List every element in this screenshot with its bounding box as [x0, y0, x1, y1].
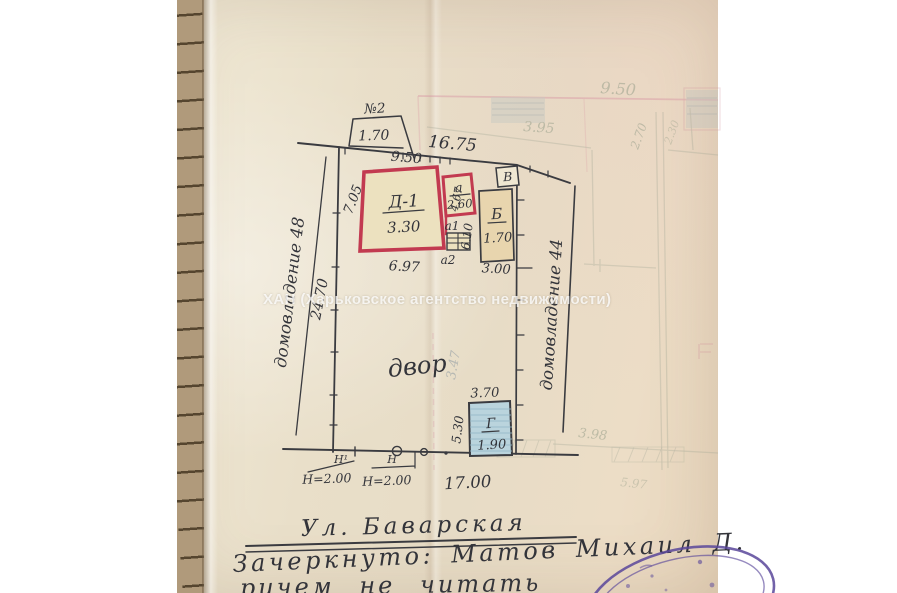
- dim-d1-bottom: 6.97: [388, 258, 420, 276]
- ghost-red-mark: [699, 344, 713, 359]
- note-line-2: ричем не читать: [240, 569, 542, 593]
- ghost-dim-230: 2.30: [661, 119, 682, 147]
- ghost-pink-line-left: [418, 96, 420, 150]
- ghost-bottom-hatch: [497, 440, 684, 462]
- ghost-dim-950: 9.50: [600, 78, 637, 99]
- street-label: Ул. Баварская: [301, 510, 527, 542]
- dim-top-total: 16.75: [427, 132, 477, 156]
- dim-b-bottom: 3.00: [481, 261, 511, 277]
- gate-mark-2-height: Н=2.00: [361, 472, 412, 489]
- tick-marks-right: [516, 200, 532, 440]
- gate-mark-1-label: Н¹: [333, 453, 348, 466]
- building-b: Б 1.70: [479, 189, 514, 262]
- ghost-dim-395: 3.95: [523, 119, 555, 137]
- building-g-label: Г: [485, 416, 497, 433]
- ghost-dim-270: 2.70: [627, 121, 650, 152]
- building-d1: Д-1 3.30: [360, 167, 444, 251]
- gate-mark-2: Н Н=2.00: [361, 452, 415, 489]
- ghost-pink-line-right: [584, 99, 587, 172]
- structure-v: В: [496, 166, 519, 187]
- gate-mark-1-height: Н=2.00: [301, 470, 352, 487]
- flag-number: №2: [363, 100, 386, 117]
- building-g: Г 1.90: [469, 401, 512, 456]
- yard-label: двор: [386, 349, 448, 383]
- building-d1-label: Д-1: [387, 191, 419, 213]
- building-d1-value: 3.30: [387, 217, 422, 237]
- gate-mark-2-label: Н: [386, 453, 397, 466]
- estate-right-group: домовладение 44: [537, 238, 567, 391]
- gate-mark-1: Н¹ Н=2.00: [301, 453, 354, 487]
- dim-top-segment: 9.50: [390, 149, 423, 168]
- agency-watermark: ХАН (Харьковское агентство недвижимости): [263, 291, 643, 308]
- dim-g-side: 5.30: [448, 415, 466, 444]
- building-b-label: Б: [490, 205, 503, 224]
- ghost-pink-line: [418, 96, 718, 100]
- neighbour-line: [563, 186, 575, 432]
- flag-height: 1.70: [358, 127, 390, 144]
- ghost-dim-398: 3.98: [578, 426, 608, 444]
- stamp-speckles: [626, 560, 714, 592]
- estate-right-label: домовладение 44: [537, 238, 567, 391]
- shed-a1-label: а1: [445, 219, 460, 233]
- building-g-value: 1.90: [477, 437, 507, 453]
- photo-of-site-plan-document: 9.50 3.95 2.70 2.30 3.47 3.98 5.97: [0, 0, 897, 593]
- ghost-hatched-block-b: [684, 88, 720, 130]
- boundary-bottom: [283, 449, 578, 455]
- boundary-right: [516, 165, 517, 454]
- ghost-dim-597: 5.97: [620, 475, 648, 492]
- dim-g-top: 3.70: [470, 386, 499, 402]
- building-b-outline: [479, 189, 514, 262]
- dim-bottom-total: 17.00: [444, 472, 492, 493]
- structure-v-label: В: [502, 169, 513, 185]
- building-b-value: 1.70: [483, 230, 513, 246]
- dim-b-side: 6.10: [458, 222, 476, 251]
- mark-a2-label: а2: [441, 253, 456, 267]
